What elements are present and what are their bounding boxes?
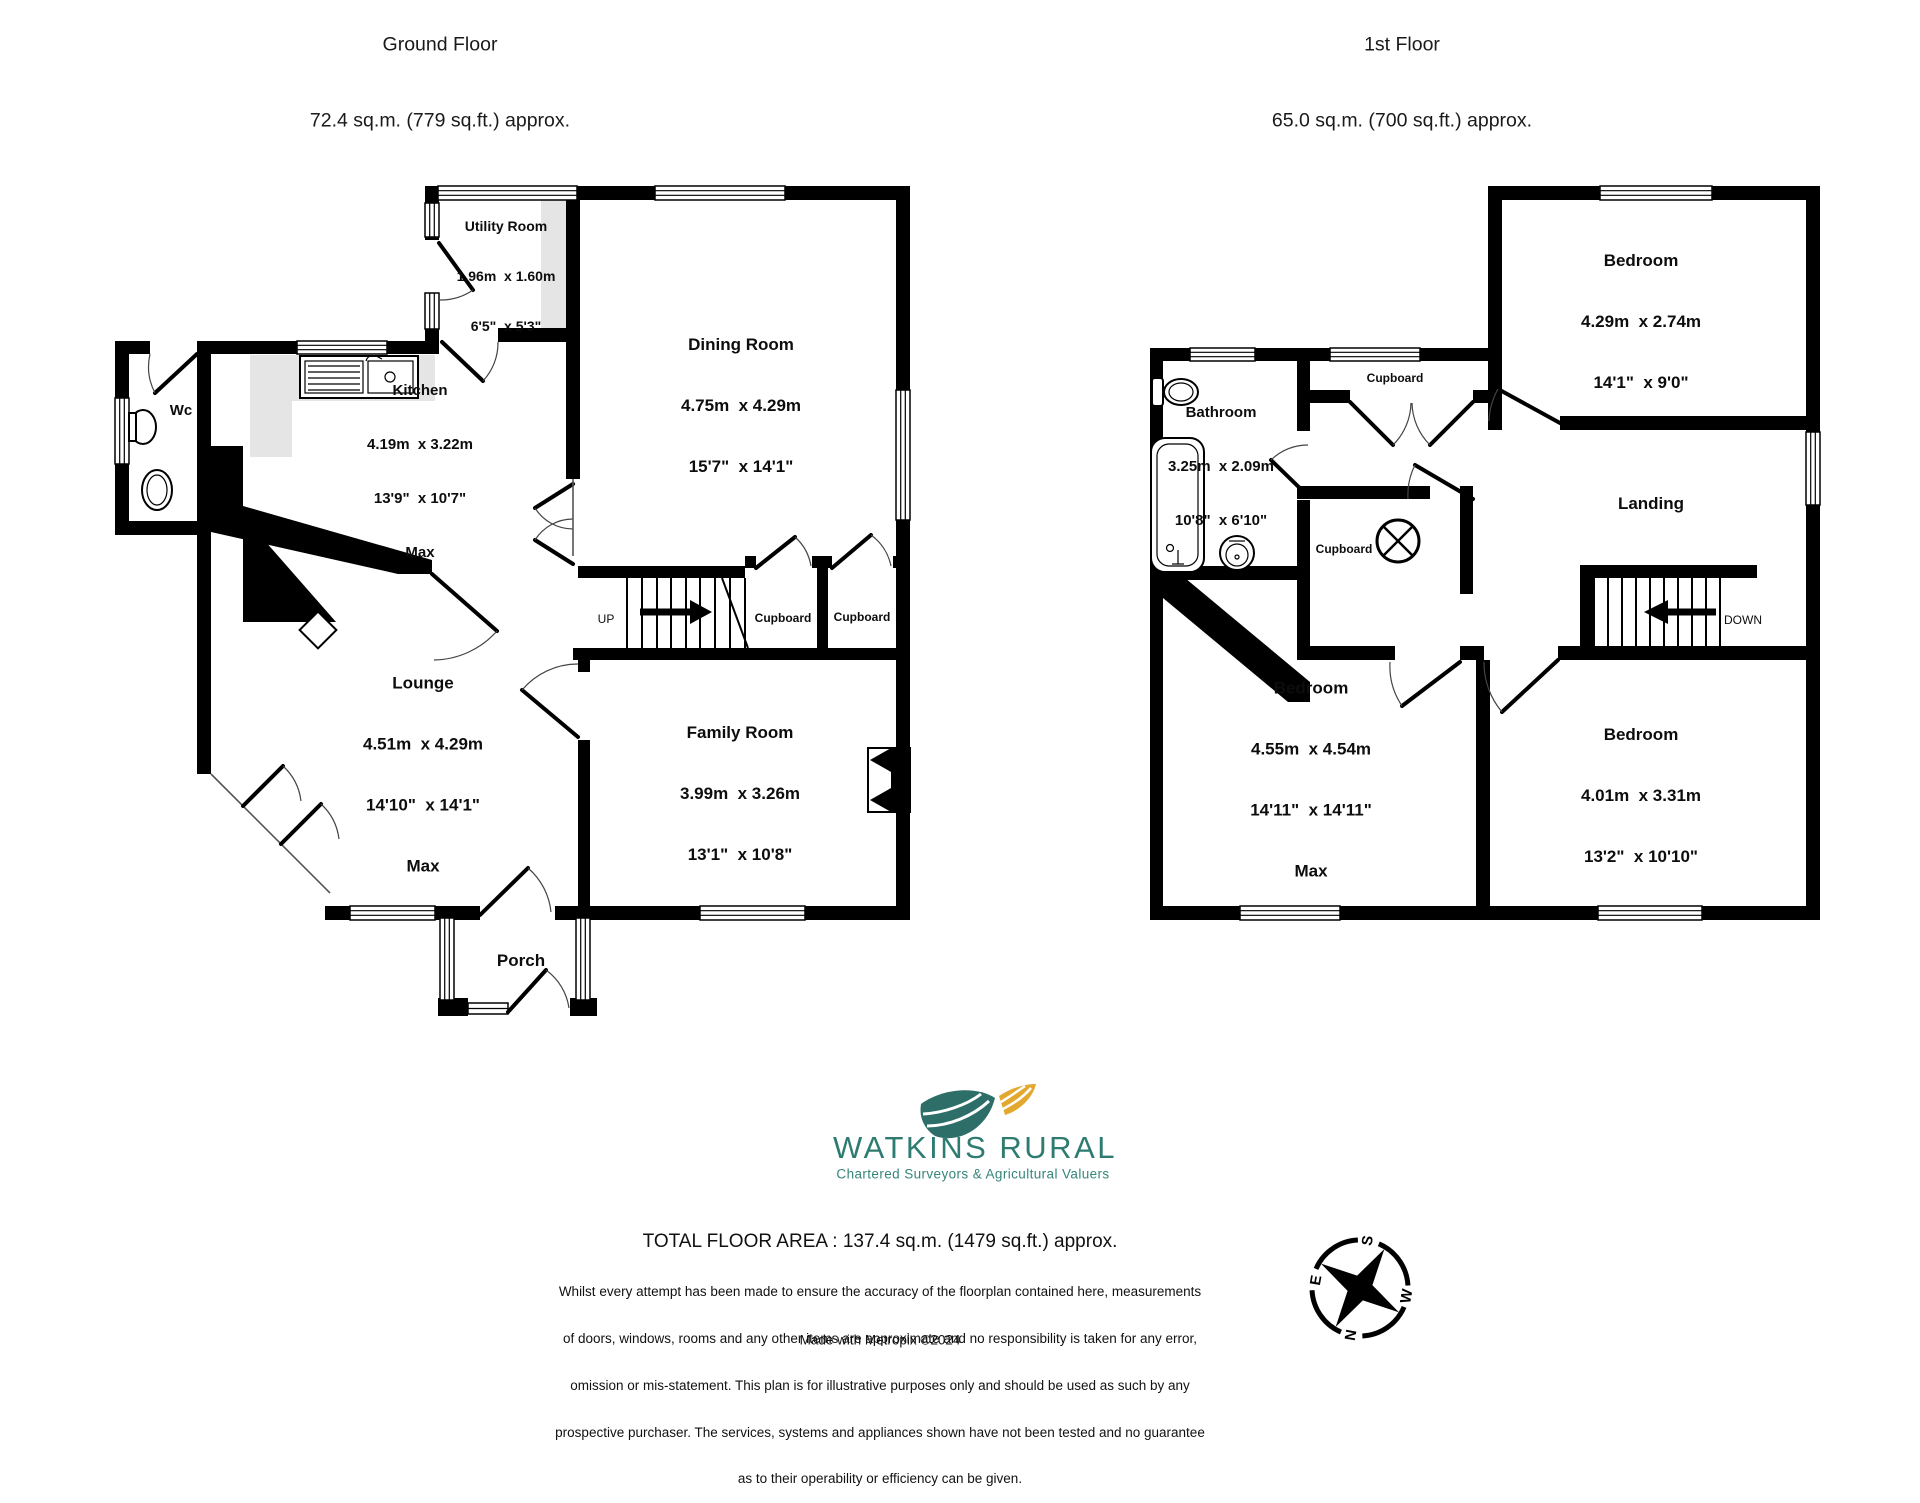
gf-stairs xyxy=(627,578,748,648)
room-dims-imperial: 10'8" x 6'10" xyxy=(1168,512,1274,530)
room-name: Wc xyxy=(170,402,193,420)
room-label-porch: Porch xyxy=(497,910,545,992)
room-label-bedroom-left: Bedroom 4.55m x 4.54m 14'11" x 14'11" Ma… xyxy=(1250,637,1372,902)
room-label-bedroom-right: Bedroom 4.01m x 3.31m 13'2" x 10'10" xyxy=(1581,684,1701,888)
room-label-family: Family Room 3.99m x 3.26m 13'1" x 10'8" xyxy=(680,682,800,886)
room-label-landing: Landing xyxy=(1618,453,1684,535)
window xyxy=(115,398,129,464)
room-label-cupboard-d: Cupboard xyxy=(1316,513,1373,571)
compass: N E S W xyxy=(1291,1219,1430,1352)
room-note: Max xyxy=(367,544,473,562)
window xyxy=(425,293,439,329)
room-name: Cupboard xyxy=(755,611,812,625)
room-dims-metric: 4.19m x 3.22m xyxy=(367,436,473,454)
window xyxy=(1598,906,1702,920)
window xyxy=(440,918,454,1000)
room-label-cupboard-a: Cupboard xyxy=(755,582,812,640)
room-dims-metric: 3.25m x 2.09m xyxy=(1168,458,1274,476)
first-floor-title: 1st Floor 65.0 sq.m. (700 sq.ft.) approx… xyxy=(1272,0,1532,159)
room-label-utility: Utility Room 1.96m x 1.60m 6'5" x 5'3" xyxy=(457,184,556,352)
room-name: Cupboard xyxy=(834,610,891,624)
room-name: Lounge xyxy=(363,673,483,693)
room-name: Landing xyxy=(1618,494,1684,514)
room-name: Utility Room xyxy=(457,218,556,235)
room-dims-metric: 4.29m x 2.74m xyxy=(1581,312,1701,332)
compass-west: W xyxy=(1397,1287,1416,1305)
room-name: Bedroom xyxy=(1250,678,1372,698)
room-name: Dining Room xyxy=(681,335,801,355)
room-dims-imperial: 14'10" x 14'1" xyxy=(363,796,483,816)
ff-stairs xyxy=(1594,578,1720,646)
compass-north: N xyxy=(1342,1328,1361,1342)
floor-area: 65.0 sq.m. (700 sq.ft.) approx. xyxy=(1272,108,1532,133)
window xyxy=(468,1003,508,1014)
stairs-direction: UP xyxy=(598,612,615,626)
window xyxy=(425,203,439,237)
room-dims-imperial: 14'1" x 9'0" xyxy=(1581,373,1701,393)
window xyxy=(1240,906,1340,920)
room-name: Cupboard xyxy=(1316,542,1373,556)
room-dims-imperial: 6'5" x 5'3" xyxy=(457,318,556,335)
window xyxy=(576,918,590,1000)
room-label-cupboard-c: Cupboard xyxy=(1367,342,1424,400)
window xyxy=(1600,186,1712,200)
total-floor-area: TOTAL FLOOR AREA : 137.4 sq.m. (1479 sq.… xyxy=(643,1231,1118,1253)
room-dims-metric: 1.96m x 1.60m xyxy=(457,268,556,285)
room-name: Family Room xyxy=(680,723,800,743)
disclaimer-line: omission or mis-statement. This plan is … xyxy=(555,1378,1205,1394)
window xyxy=(655,186,785,200)
room-label-lounge: Lounge 4.51m x 4.29m 14'10" x 14'1" Max xyxy=(363,632,483,897)
room-label-cupboard-b: Cupboard xyxy=(834,581,891,639)
room-label-bedroom-top: Bedroom 4.29m x 2.74m 14'1" x 9'0" xyxy=(1581,210,1701,414)
water-tank-icon xyxy=(1377,520,1419,562)
window xyxy=(1190,348,1255,361)
brand-tagline: Chartered Surveyors & Agricultural Value… xyxy=(836,1167,1109,1182)
disclaimer-line: prospective purchaser. The services, sys… xyxy=(555,1425,1205,1441)
room-dims-metric: 3.99m x 3.26m xyxy=(680,784,800,804)
room-name: Bathroom xyxy=(1168,404,1274,422)
disclaimer-line: as to their operability or efficiency ca… xyxy=(555,1471,1205,1487)
room-label-dining: Dining Room 4.75m x 4.29m 15'7" x 14'1" xyxy=(681,294,801,498)
room-name: Cupboard xyxy=(1367,371,1424,385)
room-name: Porch xyxy=(497,951,545,971)
disclaimer: Whilst every attempt has been made to en… xyxy=(555,1253,1205,1503)
disclaimer-line: Whilst every attempt has been made to en… xyxy=(555,1284,1205,1300)
room-note: Max xyxy=(363,857,483,877)
window xyxy=(896,390,910,520)
up-arrow-icon xyxy=(640,600,712,624)
room-name: Kitchen xyxy=(367,382,473,400)
room-name: Bedroom xyxy=(1581,725,1701,745)
compass-east: E xyxy=(1307,1274,1325,1287)
room-note: Max xyxy=(1250,862,1372,882)
room-dims-imperial: 13'9" x 10'7" xyxy=(367,490,473,508)
stairs-down-label: DOWN xyxy=(1724,584,1762,642)
credit: Made with Metropix ©2024 xyxy=(800,1333,961,1348)
room-name: Bedroom xyxy=(1581,251,1701,271)
room-label-kitchen: Kitchen 4.19m x 3.22m 13'9" x 10'7" Max xyxy=(367,346,473,580)
floor-area: 72.4 sq.m. (779 sq.ft.) approx. xyxy=(310,108,570,133)
room-dims-metric: 4.51m x 4.29m xyxy=(363,734,483,754)
window xyxy=(1806,432,1820,505)
fireplace-icon xyxy=(868,748,910,812)
ground-floor-title: Ground Floor 72.4 sq.m. (779 sq.ft.) app… xyxy=(310,0,570,159)
room-label-wc: Wc xyxy=(170,366,193,438)
room-label-bathroom: Bathroom 3.25m x 2.09m 10'8" x 6'10" xyxy=(1168,368,1274,548)
room-dims-metric: 4.01m x 3.31m xyxy=(1581,786,1701,806)
window xyxy=(350,906,435,920)
floor-title: Ground Floor xyxy=(310,32,570,57)
room-dims-metric: 4.55m x 4.54m xyxy=(1250,739,1372,759)
room-dims-imperial: 15'7" x 14'1" xyxy=(681,457,801,477)
brand-name: WATKINS RURAL xyxy=(833,1130,1117,1166)
wc-basin-icon xyxy=(129,410,156,444)
room-dims-imperial: 14'11" x 14'11" xyxy=(1250,801,1372,821)
compass-south: S xyxy=(1359,1234,1377,1247)
stairs-direction: DOWN xyxy=(1724,613,1762,627)
floor-title: 1st Floor xyxy=(1272,32,1532,57)
window xyxy=(700,906,805,920)
stairs-up-label: UP xyxy=(598,583,615,641)
room-dims-metric: 4.75m x 4.29m xyxy=(681,396,801,416)
room-dims-imperial: 13'1" x 10'8" xyxy=(680,845,800,865)
room-dims-imperial: 13'2" x 10'10" xyxy=(1581,847,1701,867)
wc-toilet-icon xyxy=(142,470,172,510)
